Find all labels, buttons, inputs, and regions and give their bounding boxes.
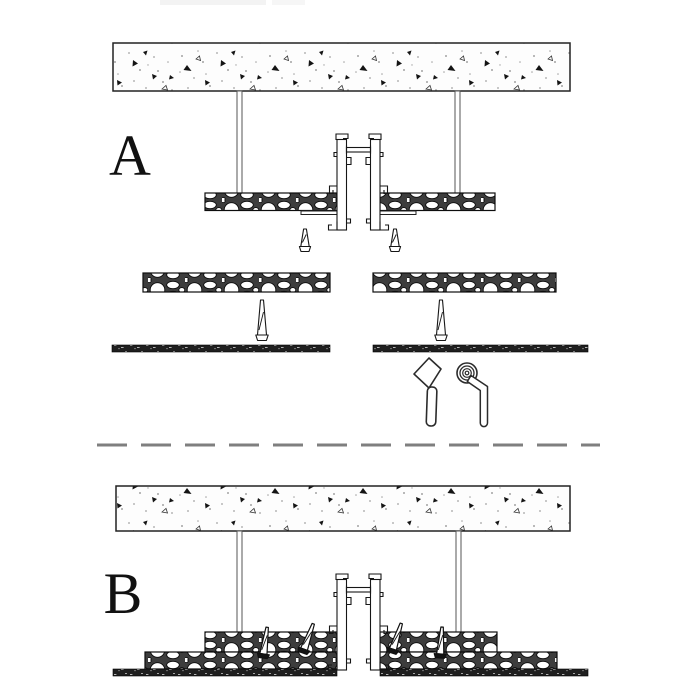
aggregate-board-mid-left (143, 273, 330, 292)
aggregate-board-top-right (380, 193, 495, 211)
ceiling-detail-drawing: A B (0, 0, 700, 700)
hanger-rod-left (237, 531, 242, 632)
finish-strip-left (112, 345, 330, 352)
tool-tape-roll (457, 363, 488, 427)
edge-trim-right (380, 211, 416, 215)
top-crop-artifact (272, 0, 305, 5)
top-crop-artifact (160, 0, 266, 5)
aggregate-board-upper-left (205, 632, 337, 652)
section-a-label: A (109, 123, 151, 188)
tape-roll-icon (467, 376, 487, 427)
tool-putty-knife (414, 358, 441, 426)
anchor-plug-small-left (299, 229, 310, 252)
recessed-track-profile (329, 134, 389, 230)
hanger-rod-right (456, 531, 461, 632)
aggregate-board-mid-right (373, 273, 556, 292)
section-a: A (109, 43, 588, 427)
hanger-rod-right (455, 91, 460, 193)
finish-strip-left (113, 669, 337, 676)
aggregate-board-top-left (205, 193, 337, 211)
anchor-plug-small-right (389, 229, 400, 252)
finish-strip-right (373, 345, 588, 352)
finish-strip-right (380, 669, 588, 676)
concrete-slab (113, 43, 570, 91)
aggregate-board-lower-right (380, 652, 557, 669)
putty-knife-icon (414, 358, 441, 388)
aggregate-board-lower-left (145, 652, 337, 669)
section-b: B (104, 486, 588, 676)
anchor-plug-tall-right (435, 300, 447, 341)
section-b-label: B (104, 561, 143, 626)
detail-drawing-page: A B (0, 0, 700, 700)
edge-trim-left (301, 211, 337, 215)
recessed-track-profile (329, 574, 389, 670)
anchor-plug-tall-left (256, 300, 268, 341)
concrete-slab (116, 486, 570, 531)
hanger-rod-left (237, 91, 242, 193)
